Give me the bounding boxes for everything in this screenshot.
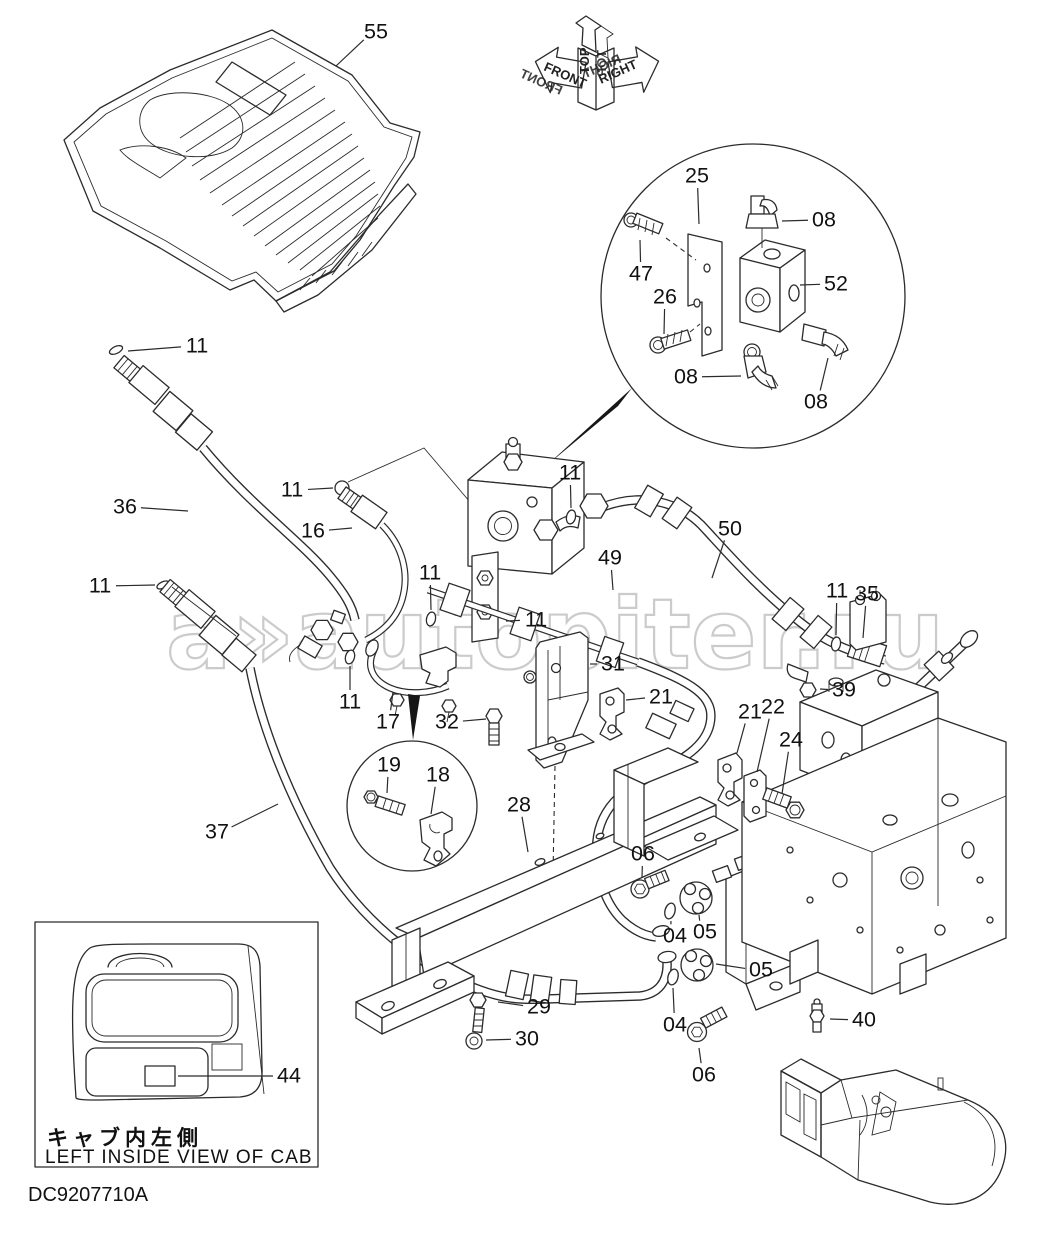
part-callout-32-22: 32 [435,710,459,735]
leader-line-18-26 [431,787,435,814]
leader-line-11-17 [836,603,837,635]
leader-line-08-2 [782,220,808,221]
part-callout-08-6: 08 [674,365,698,390]
part-callout-06-31: 06 [631,842,655,867]
leader-line-11-19 [506,620,520,621]
leader-line-21-39 [737,723,745,753]
leader-line-39-38 [820,689,828,690]
part-callout-29-29: 29 [527,995,551,1020]
part-callout-04-32: 04 [663,924,687,949]
leader-line-30-30 [486,1039,511,1040]
part-callout-11-13: 11 [419,561,441,586]
part-callout-11-23: 11 [339,690,361,715]
leader-line-04-35 [673,988,674,1013]
part-callout-24-41: 24 [779,728,803,753]
leader-line-11-12 [116,585,155,586]
leader-line-08-6 [702,376,741,377]
part-callout-36-9: 36 [113,495,137,520]
inset-caption-english: LEFT INSIDE VIEW OF CAB [45,1147,313,1169]
part-callout-55-0: 55 [364,20,388,45]
part-callout-19-25: 19 [377,753,401,778]
part-44-switch [145,1066,175,1086]
drawing-number: DC9207710A [28,1184,148,1207]
part-callout-25-1: 25 [685,164,709,189]
part-callout-31-20: 31 [601,652,625,677]
orientation-indicator: FRONT FRONT TOP TOP RIGHT RIGHT [518,16,664,110]
floor-mat-part [64,30,420,312]
part-callout-26-4: 26 [653,285,677,310]
parts-diagram-page: a»autopiter.ru FRONT FRONT TOP TOP RIGHT… [0,0,1037,1239]
part-callout-44-42: 44 [277,1064,301,1089]
leader-line-32-22 [463,719,486,721]
leader-line-36-9 [141,508,188,511]
leader-line-11-14 [570,485,571,508]
part-callout-17-24: 17 [376,710,400,735]
part-callout-11-19: 11 [525,608,547,633]
diagram-line-art: a»autopiter.ru FRONT FRONT TOP TOP RIGHT… [0,0,1037,1239]
part-callout-16-11: 16 [301,519,325,544]
part-callout-35-18: 35 [855,582,879,607]
leader-line-16-11 [329,528,352,530]
part-callout-40-37: 40 [852,1008,876,1033]
leader-line-26-4 [664,309,665,334]
leader-line-11-10 [308,488,333,489]
leader-line-08-7 [820,358,828,390]
leader-line-11-8 [128,347,181,351]
part-callout-11-8: 11 [186,334,208,359]
part-callout-11-10: 11 [281,478,303,503]
excavator-thumbnail [781,1059,1006,1204]
part-callout-30-30: 30 [515,1027,539,1052]
leader-line-25-1 [698,188,699,224]
leader-line-21-21 [626,698,645,700]
part-callout-08-7: 08 [804,390,828,415]
part-callout-37-27: 37 [205,820,229,845]
part-callout-05-33: 05 [693,920,717,945]
leader-line-37-27 [232,804,278,827]
part-callout-11-17: 11 [826,579,848,604]
leader-line-40-37 [830,1019,848,1020]
leader-line-11-13 [430,585,431,610]
part-callout-47-3: 47 [629,262,653,287]
part-callout-50-16: 50 [718,517,742,542]
leader-line-47-3 [640,240,641,262]
part-callout-21-39: 21 [738,700,762,725]
part-callout-49-15: 49 [598,546,622,571]
part-callout-08-2: 08 [812,208,836,233]
leader-line-55-0 [336,40,364,66]
part-callout-21-21: 21 [649,685,673,710]
detail-circle-bubble [546,144,905,466]
part-callout-52-5: 52 [824,272,848,297]
part-callout-11-14: 11 [559,461,581,486]
leader-line-06-36 [699,1048,701,1063]
part-callout-04-35: 04 [663,1013,687,1038]
leader-line-52-5 [800,284,820,285]
part-callout-11-12: 11 [89,574,111,599]
part-callout-06-36: 06 [692,1063,716,1088]
part-callout-39-38: 39 [832,678,856,703]
leader-line-22-40 [757,719,769,772]
part-callout-28-28: 28 [507,793,531,818]
part-callout-05-34: 05 [749,958,773,983]
part-callout-22-40: 22 [761,695,785,720]
leader-line-28-28 [522,817,528,852]
leader-line-19-25 [387,777,388,793]
part-callout-18-26: 18 [426,763,450,788]
